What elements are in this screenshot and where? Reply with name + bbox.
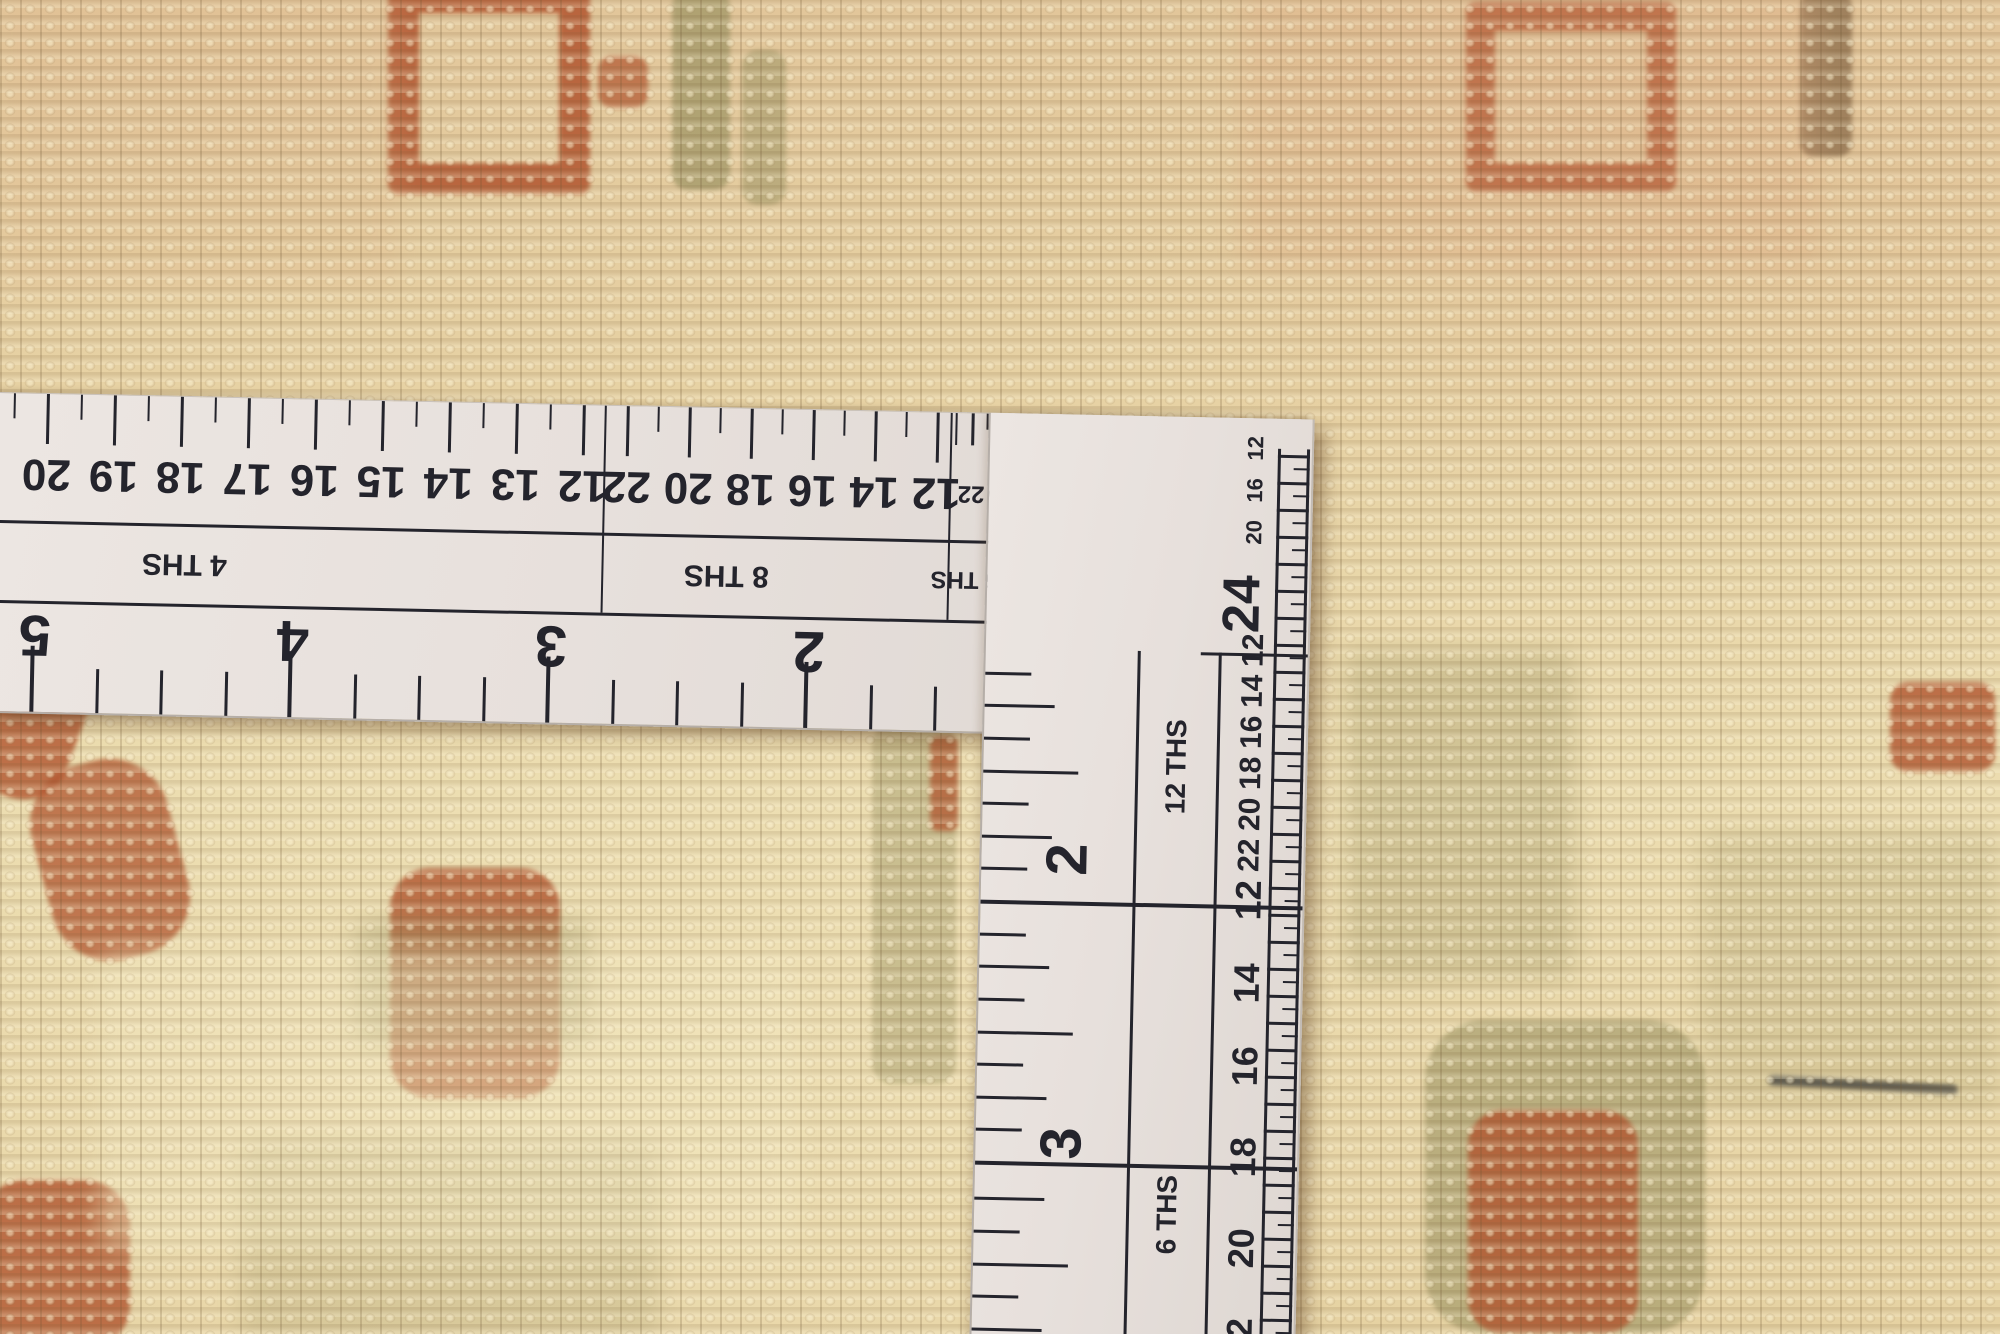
edge-half-rung-tick xyxy=(1293,495,1309,497)
green-wash xyxy=(1700,830,2000,1110)
edge-scale-number: 14 xyxy=(1228,938,1266,1029)
edge-rung-tick xyxy=(1272,752,1304,756)
edge-half-rung-tick xyxy=(1276,1305,1292,1307)
left-edge-tick xyxy=(979,965,1049,969)
rust-motif xyxy=(1890,682,1995,772)
edge-rung-tick xyxy=(1267,995,1299,999)
edge-rung-tick xyxy=(1268,941,1300,945)
scale-label-4ths: 4 THS xyxy=(104,547,265,580)
rug-photo: 4 THS 8 THS 16 THS 32 201918171615141312… xyxy=(0,0,2000,1334)
left-edge-tick xyxy=(985,704,1055,708)
top-scale-tick xyxy=(46,394,50,444)
bottom-quarter-tick xyxy=(675,681,679,725)
scale-label-12ths: 12 THS xyxy=(1161,686,1192,847)
edge-half-rung-tick xyxy=(1289,684,1305,686)
top-scale-tick xyxy=(247,398,251,448)
edge-half-rung-tick xyxy=(1289,711,1305,713)
edge-half-rung-tick xyxy=(1278,1224,1294,1226)
top-scale-half-tick xyxy=(482,403,485,428)
edge-half-rung-tick xyxy=(1286,846,1302,848)
bottom-quarter-tick xyxy=(482,677,486,721)
edge-rung-tick xyxy=(1263,1157,1295,1161)
bottom-inch-tick xyxy=(287,651,292,717)
edge-half-rung-tick xyxy=(1282,1008,1298,1010)
edge-half-rung-tick xyxy=(1291,603,1307,605)
bottom-quarter-tick xyxy=(933,687,937,731)
edge-scale-number: 20 xyxy=(1222,1203,1260,1294)
edge-half-rung-tick xyxy=(1290,630,1306,632)
left-edge-tick xyxy=(972,1295,1018,1299)
top-scale-tick xyxy=(515,404,519,454)
olive-strip-motif xyxy=(742,50,786,205)
edge-rung-tick xyxy=(1278,455,1310,459)
top-scale-tick xyxy=(626,406,630,456)
inch-number: 2 xyxy=(763,621,854,681)
top-scale-half-tick xyxy=(147,396,150,421)
olive-strip-motif xyxy=(672,0,730,190)
top-scale-half-tick xyxy=(415,402,418,427)
top-scale-half-tick xyxy=(13,393,16,418)
scale-label-6ths: 6 THS xyxy=(1151,1134,1182,1295)
edge-rung-tick xyxy=(1262,1211,1294,1215)
left-edge-tick xyxy=(976,1096,1046,1100)
olive-wash xyxy=(1345,650,1575,980)
left-edge-tick xyxy=(974,1230,1020,1234)
top-scale-tick xyxy=(381,401,385,451)
edge-rung-tick xyxy=(1261,1265,1293,1269)
bottom-quarter-tick xyxy=(95,669,99,713)
top-scale-tick xyxy=(582,405,586,455)
top-scale-tick xyxy=(314,400,318,450)
edge-rung-tick xyxy=(1274,644,1306,648)
edge-rung-tick xyxy=(1265,1049,1297,1053)
inch-number-v2: 2 xyxy=(1037,779,1098,940)
edge-half-rung-tick xyxy=(1277,1251,1293,1253)
edge-half-rung-tick xyxy=(1283,981,1299,983)
edge-half-rung-tick xyxy=(1284,927,1300,929)
edge-scale-number: 12 xyxy=(1230,855,1268,946)
left-edge-tick xyxy=(978,1031,1073,1036)
edge-half-rung-tick xyxy=(1290,657,1306,659)
left-edge-tick xyxy=(982,835,1052,839)
inch-number: 3 xyxy=(505,616,596,676)
bottom-quarter-tick xyxy=(353,674,357,718)
top-scale-tick xyxy=(750,409,754,459)
edge-rung-tick xyxy=(1266,1022,1298,1026)
left-edge-tick xyxy=(984,737,1030,741)
edge-rung-tick xyxy=(1275,590,1307,594)
edge-half-rung-tick xyxy=(1278,1197,1294,1199)
top-scale-half-tick xyxy=(549,405,552,430)
top-scale-tick xyxy=(936,413,940,463)
edge-rung-tick xyxy=(1277,482,1309,486)
edge-rung-tick xyxy=(1271,806,1303,810)
top-scale-half-tick xyxy=(905,412,908,437)
left-edge-tick xyxy=(973,1263,1068,1268)
bottom-inch-tick xyxy=(545,657,550,723)
top-scale-half-tick xyxy=(281,399,284,424)
top-scale-tick xyxy=(955,413,958,445)
edge-half-rung-tick xyxy=(1277,1278,1293,1280)
rust-diamond-motif xyxy=(1468,1110,1638,1334)
left-edge-tick xyxy=(983,770,1078,775)
inch-number: 5 xyxy=(0,605,81,665)
top-scale-half-tick xyxy=(80,395,83,420)
top-scale-tick xyxy=(812,410,816,460)
edge-half-rung-tick xyxy=(1283,954,1299,956)
edge-half-rung-tick xyxy=(1282,1035,1298,1037)
edge-rung-tick xyxy=(1270,833,1302,837)
edge-half-rung-tick xyxy=(1288,738,1304,740)
edge-half-rung-tick xyxy=(1292,549,1308,551)
top-scale-tick xyxy=(688,407,692,457)
top-scale-half-tick xyxy=(348,400,351,425)
bottom-inch-tick xyxy=(803,662,808,728)
edge-scale-number: 20 xyxy=(1242,487,1266,577)
top-scale-half-tick xyxy=(719,408,722,433)
top-scale-tick xyxy=(113,395,117,445)
scale-label-8ths: 8 THS xyxy=(646,559,807,592)
left-edge-tick xyxy=(972,1328,1042,1332)
left-edge-tick xyxy=(977,1063,1023,1067)
left-edge-tick xyxy=(978,998,1024,1002)
edge-rung-tick xyxy=(1273,698,1305,702)
pink-wash xyxy=(1240,0,1820,270)
bottom-quarter-tick xyxy=(611,680,615,724)
section-divider xyxy=(1123,651,1141,1334)
vertical-arm: 24 12 THS 6 THS 2 3 12162012141618202212… xyxy=(969,413,1315,1334)
inch-number: 4 xyxy=(247,610,338,670)
edge-rung-tick xyxy=(1272,725,1304,729)
edge-rung-tick xyxy=(1276,563,1308,567)
bottom-quarter-tick xyxy=(869,685,873,729)
edge-half-rung-tick xyxy=(1293,522,1309,524)
bottom-inch-tick xyxy=(29,646,34,712)
edge-rung-tick xyxy=(1264,1130,1296,1134)
edge-half-rung-tick xyxy=(1281,1062,1297,1064)
edge-half-rung-tick xyxy=(1285,900,1301,902)
left-edge-tick xyxy=(983,802,1029,806)
edge-rung-tick xyxy=(1267,968,1299,972)
left-edge-tick xyxy=(981,867,1027,871)
edge-rung-tick xyxy=(1276,536,1308,540)
edge-scale-number: 22 xyxy=(1221,1293,1259,1334)
left-edge-tick xyxy=(985,672,1031,676)
edge-rung-tick xyxy=(1269,887,1301,891)
top-scale-tick xyxy=(971,413,975,445)
edge-rung-tick xyxy=(1268,914,1300,918)
edge-rung-tick xyxy=(1262,1238,1294,1242)
edge-half-rung-tick xyxy=(1281,1089,1297,1091)
edge-rung-tick xyxy=(1260,1319,1292,1323)
pink-wash xyxy=(0,0,400,290)
bottom-quarter-tick xyxy=(159,670,163,714)
left-edge-tick xyxy=(976,1128,1022,1132)
edge-half-rung-tick xyxy=(1287,765,1303,767)
edge-scale-number: 18 xyxy=(1224,1112,1262,1203)
edge-half-rung-tick xyxy=(1287,792,1303,794)
edge-half-rung-tick xyxy=(1285,873,1301,875)
left-edge-tick xyxy=(974,1197,1044,1201)
bottom-quarter-tick xyxy=(740,683,744,727)
edge-half-rung-tick xyxy=(1294,468,1310,470)
edge-half-rung-tick xyxy=(1286,819,1302,821)
top-scale-tick xyxy=(874,411,878,461)
edge-rung-tick xyxy=(1264,1103,1296,1107)
edge-rung-tick xyxy=(1260,1292,1292,1296)
edge-rung-tick xyxy=(1265,1076,1297,1080)
edge-scale-number: 16 xyxy=(1226,1021,1264,1112)
edge-rung-tick xyxy=(1275,617,1307,621)
rust-hollow-square-motif xyxy=(388,0,590,194)
rust-dot-motif xyxy=(598,56,648,108)
section-divider xyxy=(1204,653,1222,1334)
top-scale-half-tick xyxy=(214,397,217,422)
top-scale-half-tick xyxy=(843,411,846,436)
edge-rung-tick xyxy=(1271,779,1303,783)
bottom-quarter-tick xyxy=(417,676,421,720)
left-edge-tick xyxy=(980,933,1026,937)
top-scale-tick xyxy=(180,397,184,447)
top-scale-half-tick xyxy=(657,407,660,432)
edge-half-rung-tick xyxy=(1280,1143,1296,1145)
top-scale-half-tick xyxy=(781,409,784,434)
edge-rung-tick xyxy=(1269,860,1301,864)
bottom-quarter-tick xyxy=(224,672,228,716)
edge-rung-tick xyxy=(1277,509,1309,513)
top-scale-tick xyxy=(448,402,452,452)
edge-half-rung-tick xyxy=(1280,1116,1296,1118)
edge-rung-tick xyxy=(1263,1184,1295,1188)
edge-rung-tick xyxy=(1273,671,1305,675)
framing-square: 4 THS 8 THS 16 THS 32 201918171615141312… xyxy=(0,392,1311,1334)
edge-half-rung-tick xyxy=(1291,576,1307,578)
